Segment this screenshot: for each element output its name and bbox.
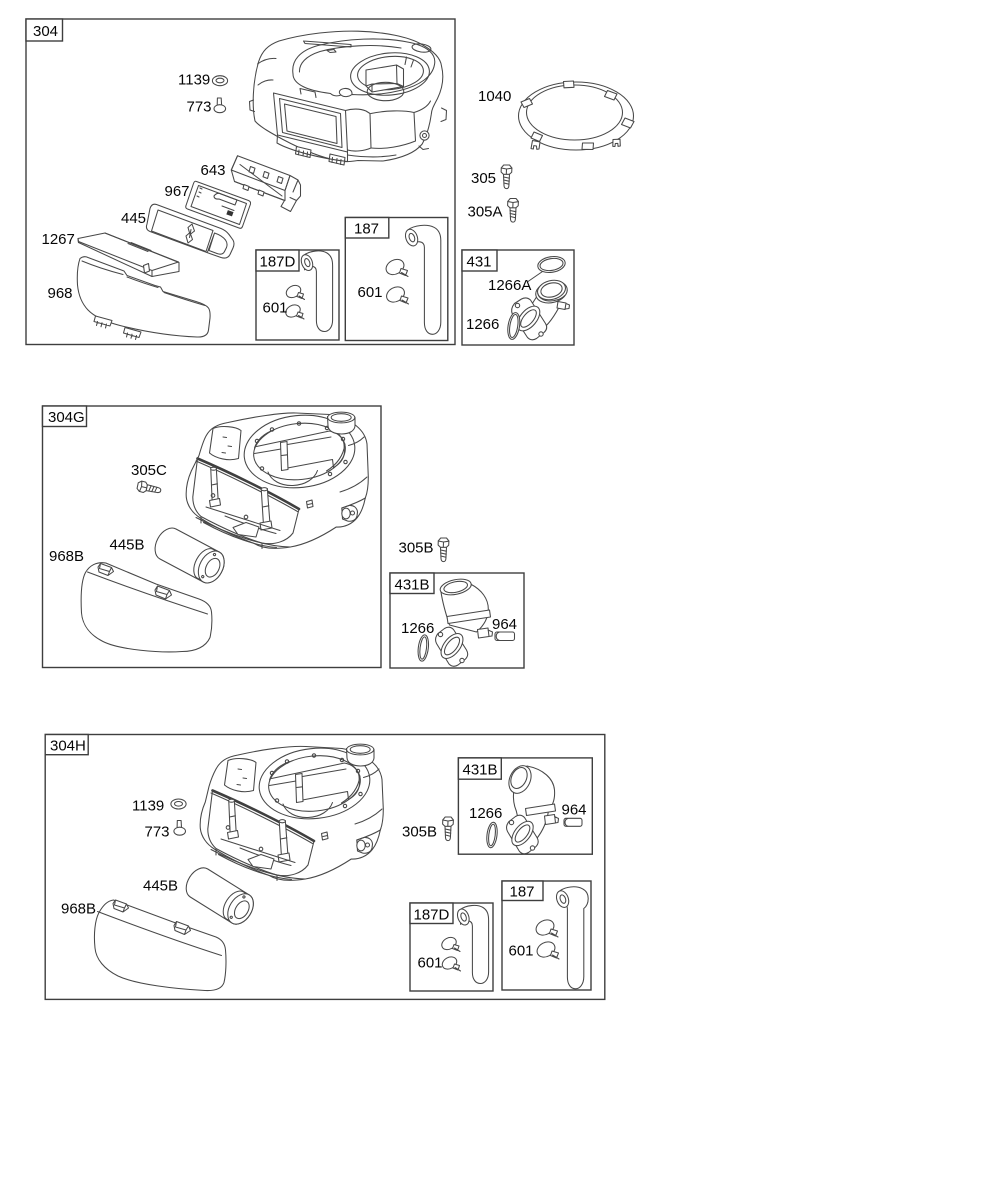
svg-text:187: 187 — [510, 884, 535, 901]
svg-text:305: 305 — [471, 170, 496, 187]
svg-text:968B: 968B — [61, 901, 96, 918]
svg-text:431: 431 — [467, 254, 492, 271]
svg-text:968B: 968B — [49, 548, 84, 565]
svg-text:967: 967 — [165, 183, 190, 200]
svg-text:187D: 187D — [260, 254, 296, 271]
svg-text:1266: 1266 — [466, 316, 499, 333]
svg-text:187D: 187D — [414, 907, 450, 924]
svg-text:1267: 1267 — [42, 231, 75, 248]
svg-text:1139: 1139 — [178, 72, 210, 89]
svg-text:304G: 304G — [48, 409, 85, 426]
svg-text:773: 773 — [145, 824, 170, 841]
svg-text:304: 304 — [33, 23, 58, 40]
svg-text:601: 601 — [358, 284, 383, 301]
svg-text:445: 445 — [121, 210, 146, 227]
svg-text:305B: 305B — [399, 540, 434, 557]
svg-text:445B: 445B — [143, 878, 178, 895]
svg-text:445B: 445B — [110, 537, 145, 554]
svg-text:305B: 305B — [402, 824, 437, 841]
svg-text:964: 964 — [562, 802, 587, 819]
svg-text:187: 187 — [354, 221, 379, 238]
svg-text:601: 601 — [418, 955, 443, 972]
svg-text:964: 964 — [492, 616, 517, 633]
svg-text:431B: 431B — [463, 762, 498, 779]
svg-text:1139: 1139 — [132, 798, 164, 815]
svg-text:968: 968 — [48, 285, 73, 302]
svg-text:1266: 1266 — [469, 805, 502, 822]
svg-text:1266: 1266 — [401, 620, 434, 637]
svg-text:1040: 1040 — [478, 88, 511, 105]
svg-text:305C: 305C — [131, 462, 167, 479]
svg-text:601: 601 — [263, 300, 288, 317]
svg-text:304H: 304H — [50, 738, 86, 755]
svg-text:643: 643 — [201, 162, 226, 179]
svg-text:1266A: 1266A — [488, 277, 531, 294]
svg-text:601: 601 — [509, 943, 534, 960]
svg-text:305A: 305A — [468, 204, 503, 221]
svg-text:773: 773 — [187, 99, 212, 116]
svg-text:431B: 431B — [395, 577, 430, 594]
